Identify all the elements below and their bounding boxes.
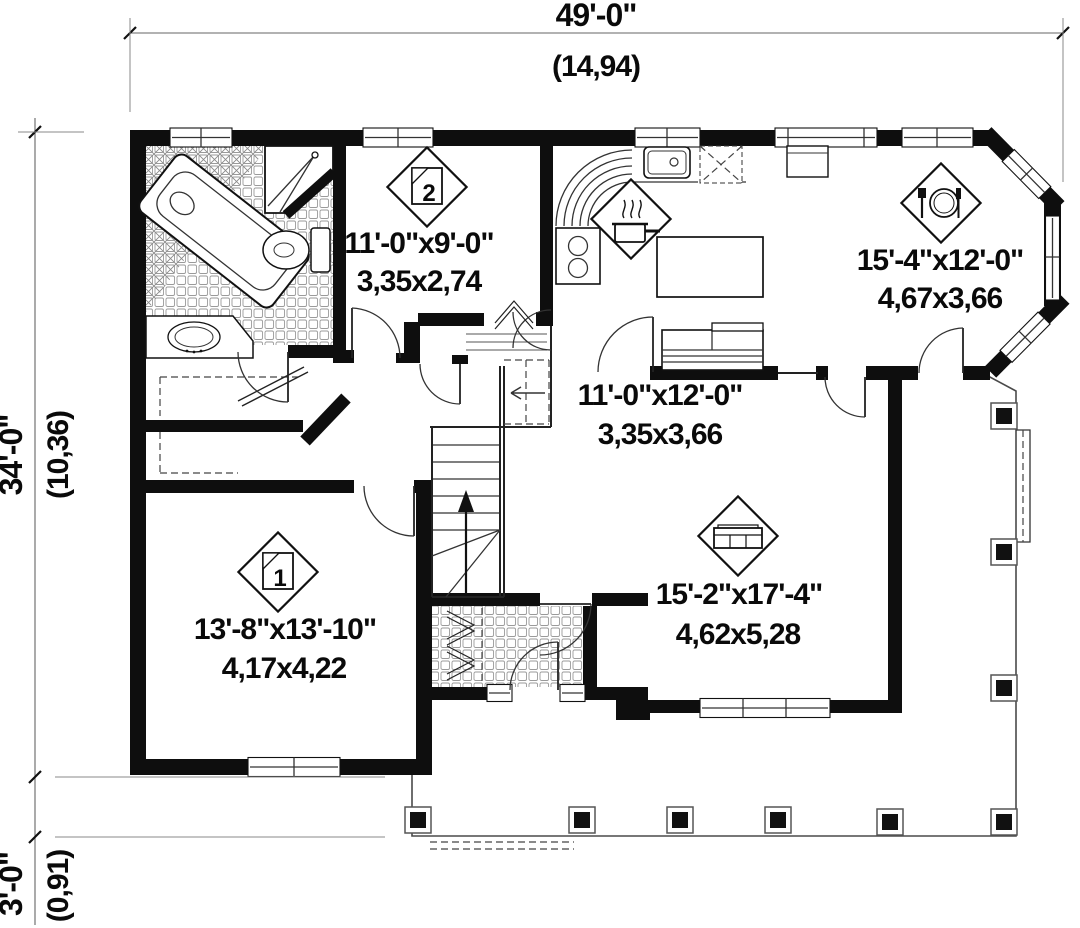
window: [700, 699, 830, 718]
porch-column: [765, 807, 791, 833]
dim-porch-imperial: 3'-0": [0, 852, 29, 916]
window: [363, 128, 433, 147]
room-size-imperial: 11'-0"x9'-0": [344, 227, 493, 260]
room-label-bedroom2: 2 11'-0"x9'-0" 3,35x2,74: [344, 147, 493, 298]
living-hall-door: [825, 377, 865, 417]
wall-closet-divider: [146, 420, 303, 432]
porch-column: [991, 539, 1017, 565]
porch-column: [877, 809, 903, 835]
shower-head: [312, 152, 318, 158]
refrigerator: [787, 146, 828, 177]
room-size-metric: 3,35x3,66: [598, 418, 723, 451]
porch-column: [991, 809, 1017, 835]
wall-bedroom2-bottom: [418, 313, 484, 326]
wall-entry-front: [416, 687, 487, 700]
basement-stair-treads: [466, 334, 547, 350]
porch-column: [405, 807, 431, 833]
bed-icon: 1: [263, 553, 293, 592]
dim-depth-imperial: 34'-0": [0, 415, 29, 496]
porch-column: [991, 403, 1017, 429]
hall-corridor-door: [420, 364, 460, 404]
bed-icon: 2: [412, 168, 442, 207]
porch-column: [667, 807, 693, 833]
toilet: [263, 228, 330, 272]
sofa: [662, 323, 763, 370]
wall-entry-top: [416, 593, 540, 606]
kitchen-island: [657, 237, 763, 297]
porch-column: [991, 675, 1017, 701]
sofa-icon: [714, 525, 762, 548]
entry-tile-floor: [432, 606, 583, 687]
room-label-family: 11'-0"x12'-0" 3,35x3,66: [578, 379, 743, 451]
wall-left: [130, 130, 146, 775]
room-size-imperial: 13'-8"x13'-10": [194, 613, 376, 646]
room-label-bedroom1: 1 13'-8"x13'-10" 4,17x4,22: [194, 532, 376, 685]
sidelight-window: [560, 685, 585, 702]
window: [635, 128, 700, 147]
dim-width-imperial: 49'-0": [556, 0, 637, 33]
room-label-dining: 15'-4"x12'-0" 4,67x3,66: [857, 163, 1024, 315]
wall-hall-angled: [305, 398, 346, 441]
staircase: [430, 326, 551, 597]
room-size-imperial: 15'-4"x12'-0": [857, 244, 1024, 277]
floor-plan-drawing: 2 11'-0"x9'-0" 3,35x2,74: [0, 0, 1080, 928]
basement-stair-dashed: [504, 360, 549, 424]
room-size-metric: 4,62x5,28: [676, 618, 801, 651]
kitchen-fixtures: [513, 146, 828, 350]
kitchen-sink: [644, 147, 690, 178]
dim-depth-metric: (10,36): [42, 411, 75, 499]
wall-bedroom1-top: [146, 480, 354, 493]
wall-living-right: [888, 376, 902, 713]
family-living-door: [598, 317, 653, 372]
room-size-metric: 4,67x3,66: [878, 282, 1003, 315]
range: [556, 228, 600, 284]
window: [248, 758, 340, 777]
dining-door: [919, 328, 963, 373]
front-steps: [430, 842, 574, 849]
wall-bedroom1-right: [416, 493, 432, 759]
bedroom1-door: [364, 486, 414, 536]
room-size-imperial: 15'-2"x17'-4": [656, 578, 823, 611]
room-label-living: 15'-2"x17'-4" 4,62x5,28: [656, 496, 823, 651]
window: [1046, 216, 1060, 300]
floorplan-canvas: 2 11'-0"x9'-0" 3,35x2,74: [0, 0, 1080, 928]
room-size-metric: 4,17x4,22: [222, 652, 347, 685]
wall-kitchen-bedroom2: [540, 130, 553, 312]
dim-width-metric: (14,94): [552, 50, 640, 83]
wall-entry-right: [583, 606, 597, 687]
pantry-chevron: [495, 301, 533, 329]
window: [902, 128, 973, 147]
room-size-metric: 3,35x2,74: [357, 265, 483, 298]
porch-column: [569, 807, 595, 833]
dishwasher: [700, 146, 742, 183]
bedroom2-door: [352, 308, 400, 358]
stair-down-arrow: [511, 387, 545, 399]
window: [170, 128, 232, 147]
sidelight-window: [487, 685, 512, 702]
dim-porch-metric: (0,91): [42, 850, 75, 922]
vanity-sink: [146, 316, 253, 358]
room-number: 1: [273, 565, 286, 592]
room-number: 2: [422, 180, 435, 207]
room-size-imperial: 11'-0"x12'-0": [578, 379, 743, 412]
window: [775, 128, 877, 147]
